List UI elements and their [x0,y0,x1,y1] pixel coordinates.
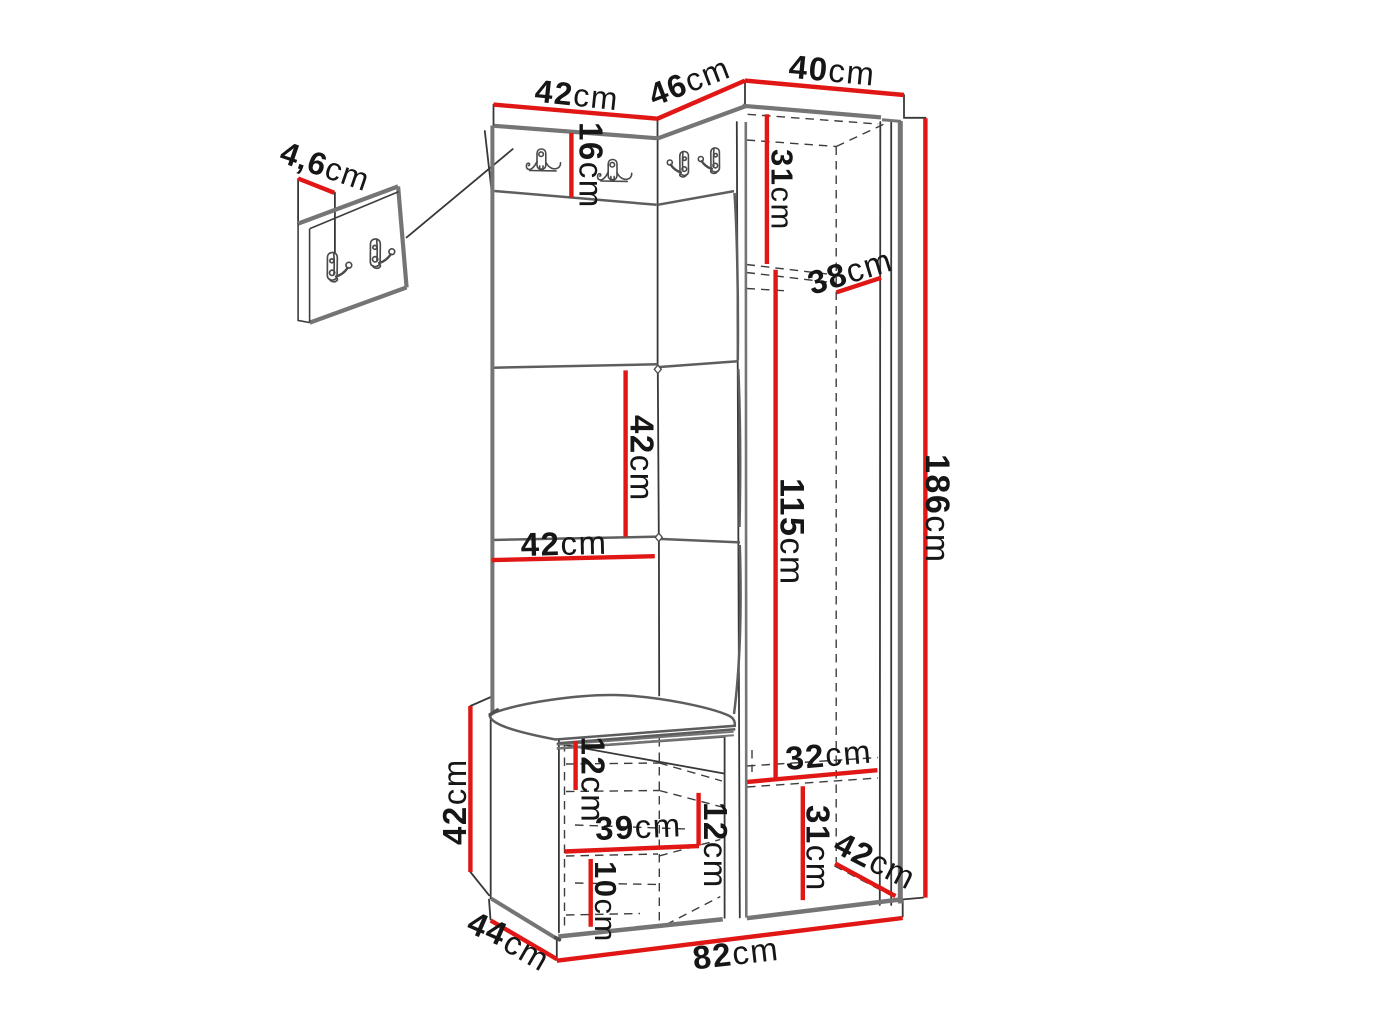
svg-text:42cm: 42cm [520,524,608,563]
svg-text:16cm: 16cm [573,122,610,209]
svg-text:115cm: 115cm [773,478,811,586]
svg-text:12cm: 12cm [697,802,734,889]
svg-text:42cm: 42cm [436,758,473,845]
svg-text:31cm: 31cm [765,149,800,231]
svg-text:32cm: 32cm [784,733,874,777]
svg-text:186cm: 186cm [918,454,956,564]
svg-text:10cm: 10cm [588,861,623,943]
svg-text:31cm: 31cm [800,805,837,892]
svg-text:42cm: 42cm [624,415,661,502]
svg-text:39cm: 39cm [594,806,682,847]
